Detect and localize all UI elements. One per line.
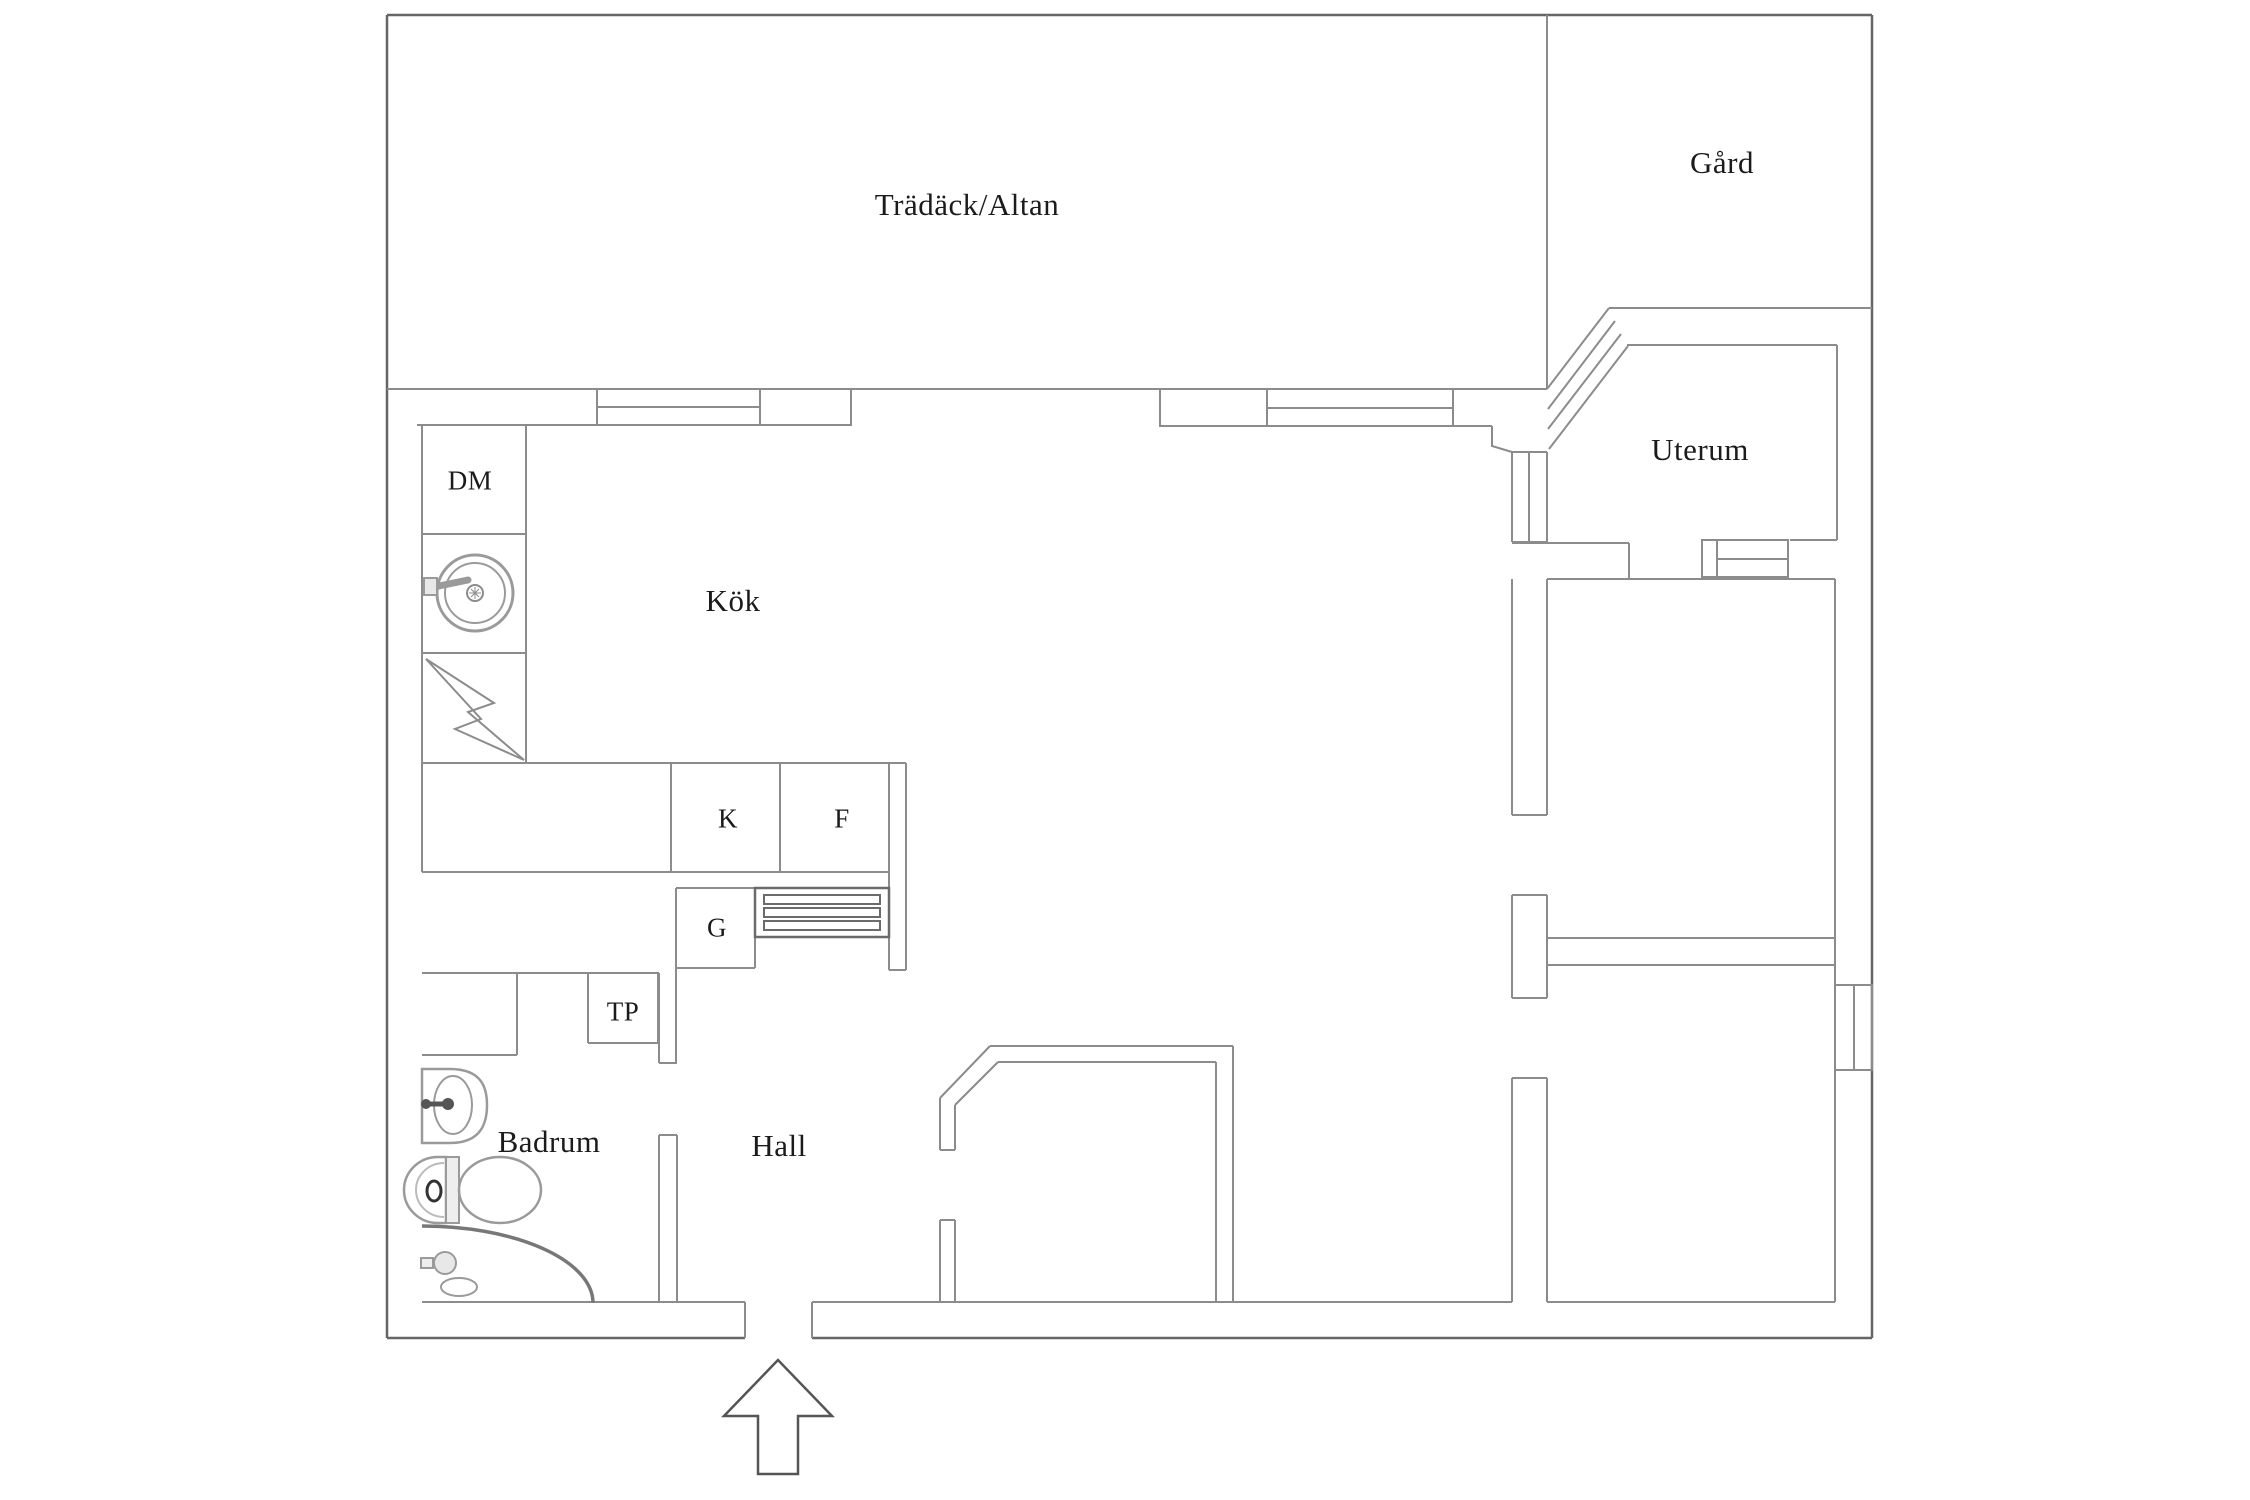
room-label-dm: DM <box>448 466 493 497</box>
north-wall-and-windows <box>417 389 1512 452</box>
floor-plan-drawing <box>0 0 2250 1500</box>
bedroom-walls <box>1512 579 1872 1302</box>
corner-shower-icon <box>421 1226 593 1303</box>
deck-and-yard-walls <box>387 15 1872 389</box>
grille-hatch-icon <box>755 888 889 937</box>
floor-plan-canvas: Trädäck/Altan Gård Uterum Kök DM K F G T… <box>0 0 2250 1500</box>
room-label-hall: Hall <box>751 1128 806 1164</box>
uterum-west-window <box>1512 452 1547 542</box>
room-label-tradack-altan: Trädäck/Altan <box>875 187 1059 223</box>
entrance-arrow-icon <box>724 1360 832 1474</box>
room-label-k: K <box>718 804 738 835</box>
middle-room-walls <box>940 1046 1233 1302</box>
room-label-g: G <box>707 913 727 944</box>
washbasin-icon <box>421 1069 487 1143</box>
room-label-tp: TP <box>607 997 640 1028</box>
deck-door-1 <box>760 389 851 425</box>
angled-passage-door <box>1547 308 1628 449</box>
room-label-kok: Kök <box>706 583 761 619</box>
room-label-uterum: Uterum <box>1651 432 1749 468</box>
toilet-icon <box>404 1157 541 1223</box>
room-label-f: F <box>834 804 850 835</box>
room-label-badrum: Badrum <box>498 1124 601 1160</box>
stove-lightning-icon <box>426 659 524 760</box>
deck-door-2 <box>1160 389 1267 426</box>
kitchen-sink-icon <box>424 555 513 631</box>
room-label-gard: Gård <box>1690 145 1754 181</box>
outer-boundary-walls <box>387 15 1872 1338</box>
